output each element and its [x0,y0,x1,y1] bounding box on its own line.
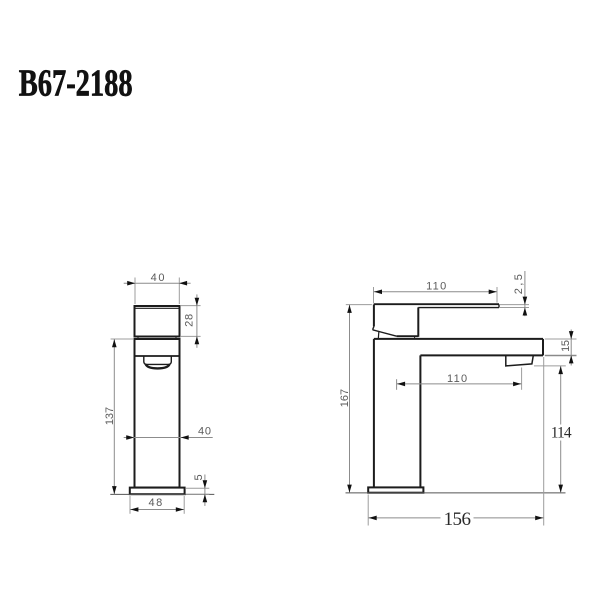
svg-text:28: 28 [184,313,196,327]
svg-text:40: 40 [151,272,166,284]
svg-text:5: 5 [193,474,205,480]
svg-text:48: 48 [148,497,163,509]
svg-text:167: 167 [339,389,351,407]
svg-text:2,5: 2,5 [513,272,525,295]
svg-text:B67-2188: B67-2188 [19,63,133,105]
svg-text:15: 15 [560,340,572,352]
svg-text:114: 114 [551,424,572,441]
svg-text:156: 156 [444,509,471,530]
svg-text:40: 40 [198,425,212,437]
svg-text:110: 110 [426,281,447,293]
svg-text:137: 137 [104,407,116,425]
svg-text:110: 110 [447,373,468,385]
